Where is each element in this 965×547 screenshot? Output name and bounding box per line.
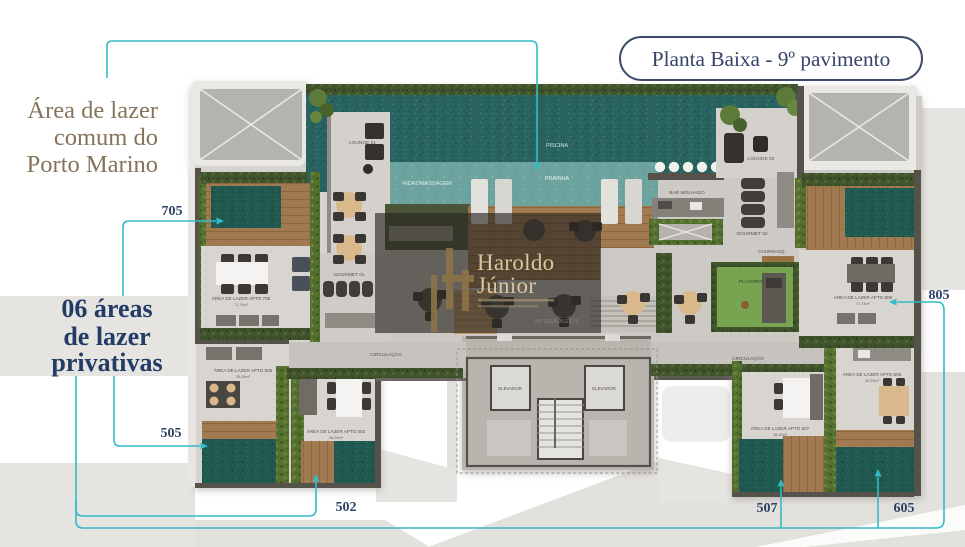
svg-text:Porto Marino: Porto Marino: [27, 151, 158, 178]
svg-text:Haroldo: Haroldo: [477, 250, 554, 275]
svg-text:CIRCULAÇÃO: CIRCULAÇÃO: [732, 355, 764, 362]
svg-text:ELEVADOR: ELEVADOR: [592, 386, 616, 391]
svg-text:BAR MOLHADO: BAR MOLHADO: [669, 190, 705, 196]
svg-text:ÁREA DE LAZER APTO 505: ÁREA DE LAZER APTO 505: [214, 367, 273, 373]
svg-text:PRAINHA: PRAINHA: [545, 176, 570, 182]
svg-text:71,74m²: 71,74m²: [856, 302, 871, 306]
svg-text:HIDROMASSAGEM: HIDROMASSAGEM: [402, 181, 452, 187]
svg-text:805: 805: [929, 288, 950, 303]
svg-text:71,74m²: 71,74m²: [234, 303, 249, 307]
svg-text:507: 507: [757, 501, 778, 516]
svg-text:Planta Baixa - 9º pavimento: Planta Baixa - 9º pavimento: [652, 47, 890, 71]
svg-text:ÁREA DE LAZER APTO 705: ÁREA DE LAZER APTO 705: [212, 295, 271, 301]
svg-text:502: 502: [336, 500, 357, 515]
svg-text:06 áreas: 06 áreas: [61, 294, 152, 323]
svg-text:CIRCULAÇÃO: CIRCULAÇÃO: [370, 351, 402, 358]
svg-text:ELEVADOR: ELEVADOR: [498, 386, 522, 391]
svg-text:605: 605: [894, 501, 915, 516]
svg-text:ÁREA DE LAZER APTO 805: ÁREA DE LAZER APTO 805: [834, 294, 893, 300]
svg-text:GOURMET 02: GOURMET 02: [736, 231, 767, 237]
svg-text:ÁREA DE LAZER APTO 605: ÁREA DE LAZER APTO 605: [843, 371, 902, 377]
svg-text:NO EQUIVALENTE: NO EQUIVALENTE: [535, 319, 579, 325]
svg-text:ÁREA DE LAZER APTO 502: ÁREA DE LAZER APTO 502: [307, 428, 366, 434]
svg-text:36,00m²: 36,00m²: [329, 436, 344, 440]
svg-text:35,39m²: 35,39m²: [865, 379, 880, 383]
svg-text:privativas: privativas: [51, 348, 162, 377]
svg-text:35,35m²: 35,35m²: [236, 375, 251, 379]
svg-text:comum do: comum do: [54, 124, 158, 151]
svg-text:505: 505: [161, 426, 182, 441]
svg-text:Júnior: Júnior: [477, 273, 536, 298]
svg-text:Área de lazer: Área de lazer: [27, 96, 158, 124]
svg-text:de lazer: de lazer: [63, 322, 150, 351]
svg-text:ÁREA DE LAZER APTO 507: ÁREA DE LAZER APTO 507: [751, 425, 810, 431]
svg-text:GOURMET 01: GOURMET 01: [333, 272, 364, 278]
svg-text:PISCINA: PISCINA: [546, 143, 568, 149]
svg-text:LOUNGE 02: LOUNGE 02: [748, 156, 775, 162]
svg-text:CHURRASQ.: CHURRASQ.: [758, 249, 786, 254]
svg-text:705: 705: [162, 204, 183, 219]
